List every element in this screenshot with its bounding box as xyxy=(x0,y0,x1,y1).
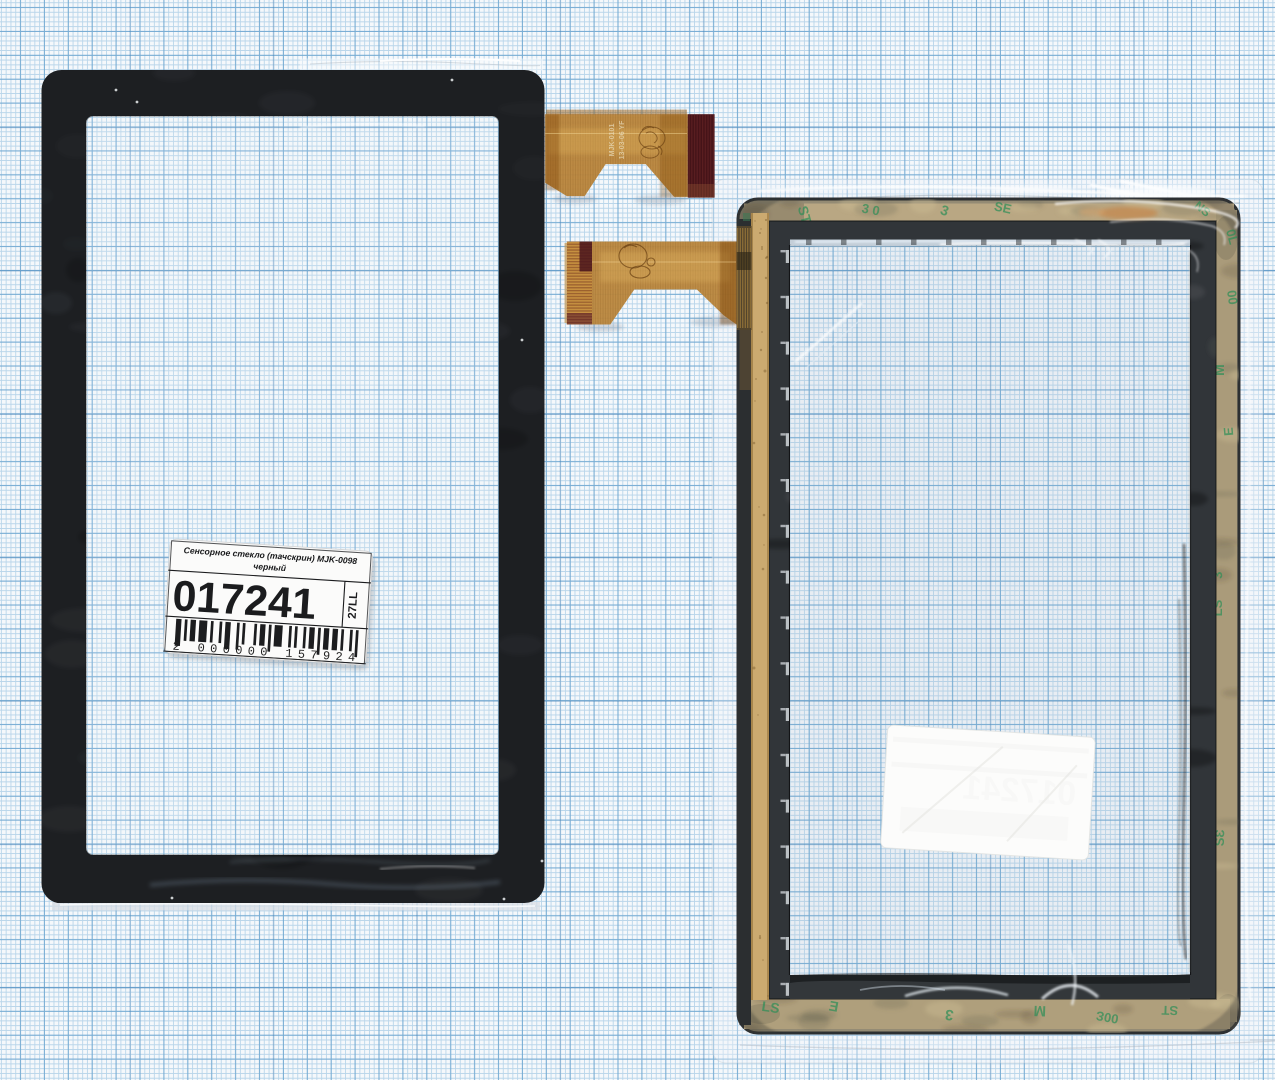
svg-text:27LL: 27LL xyxy=(347,592,361,620)
svg-text:13-03-06 YF: 13-03-06 YF xyxy=(619,120,626,160)
svg-text:00: 00 xyxy=(1224,289,1241,305)
svg-text:ST: ST xyxy=(1161,1003,1178,1019)
svg-text:M: M xyxy=(1033,1002,1046,1019)
svg-text:MJK-0101: MJK-0101 xyxy=(609,124,616,157)
svg-text:Ǝ: Ǝ xyxy=(1221,427,1237,437)
svg-text:LS: LS xyxy=(761,998,781,1016)
svg-text:3 0: 3 0 xyxy=(861,201,881,219)
svg-text:черный: черный xyxy=(253,561,287,573)
